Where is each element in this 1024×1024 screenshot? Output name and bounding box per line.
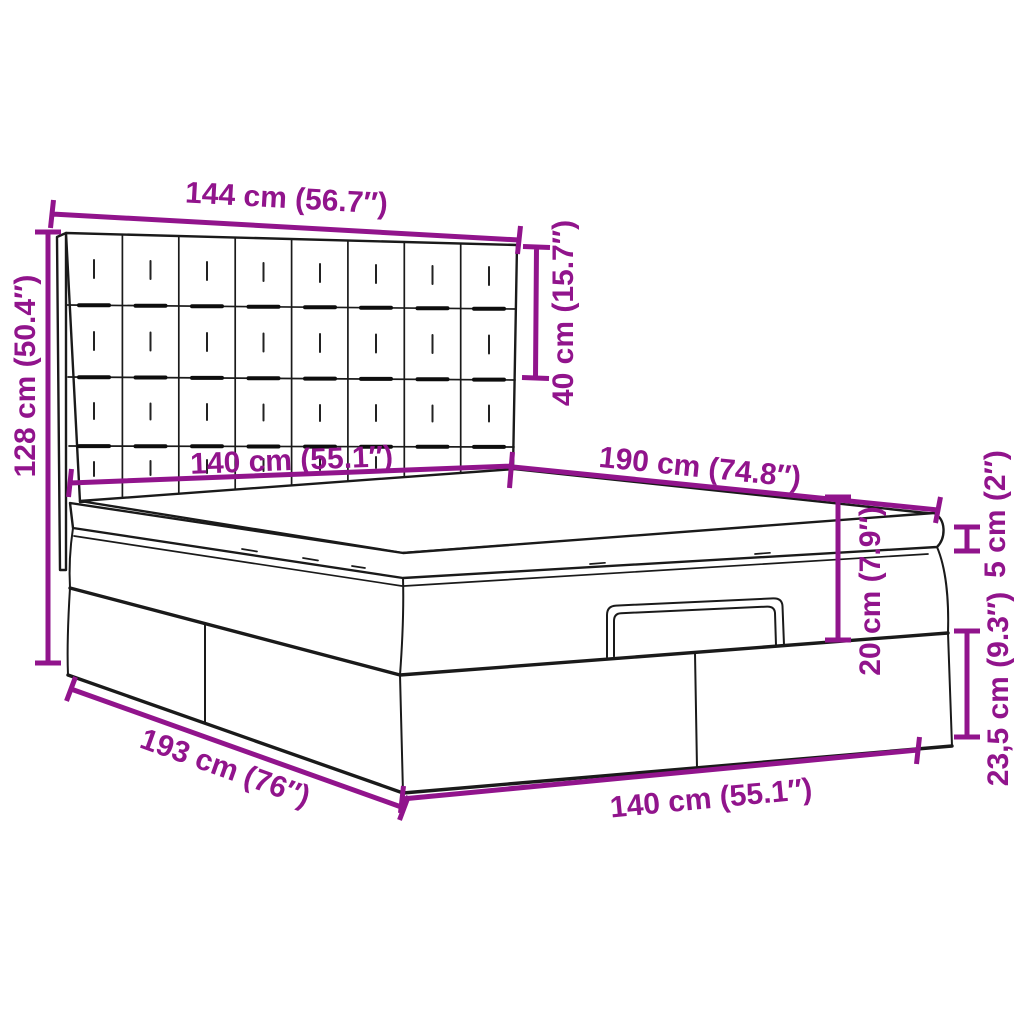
base-right-edge	[948, 633, 952, 746]
base-panel-seams	[205, 624, 697, 768]
mattress-box-corner-edge	[400, 578, 403, 675]
dim-topper-height-label: 5 cm (2″)	[979, 450, 1012, 578]
dim-base-height-line	[954, 631, 980, 737]
base-left-edge	[68, 588, 70, 675]
dim-base-length-line	[67, 677, 409, 820]
base-top-edge	[70, 588, 948, 675]
dim-headboard-total-height-label: 128 cm (50.4″)	[9, 275, 42, 478]
dim-headboard-panel-height-label: 40 cm (15.7″)	[547, 220, 580, 406]
dim-base-width-label: 140 cm (55.1″)	[609, 773, 814, 825]
dim-base-height-label: 23,5 cm (9.3″)	[982, 592, 1015, 786]
mattress-box-left-edge	[70, 528, 73, 588]
headboard-side-strip	[57, 233, 66, 570]
dim-topper-height-line	[954, 527, 980, 551]
bed-dimension-drawing: 144 cm (56.7″) 40 cm (15.7″) 128 cm (50.…	[0, 0, 1024, 1024]
product-dimension-diagram: 144 cm (56.7″) 40 cm (15.7″) 128 cm (50.…	[0, 0, 1024, 1024]
base-corner-edge	[400, 675, 403, 793]
dim-headboard-panel-height-line	[522, 247, 550, 379]
dim-headboard-width-label: 144 cm (56.7″)	[184, 176, 388, 220]
dim-frame-height-label: 20 cm (7.9″)	[854, 506, 887, 675]
mattress-box-right-cap	[937, 547, 948, 633]
